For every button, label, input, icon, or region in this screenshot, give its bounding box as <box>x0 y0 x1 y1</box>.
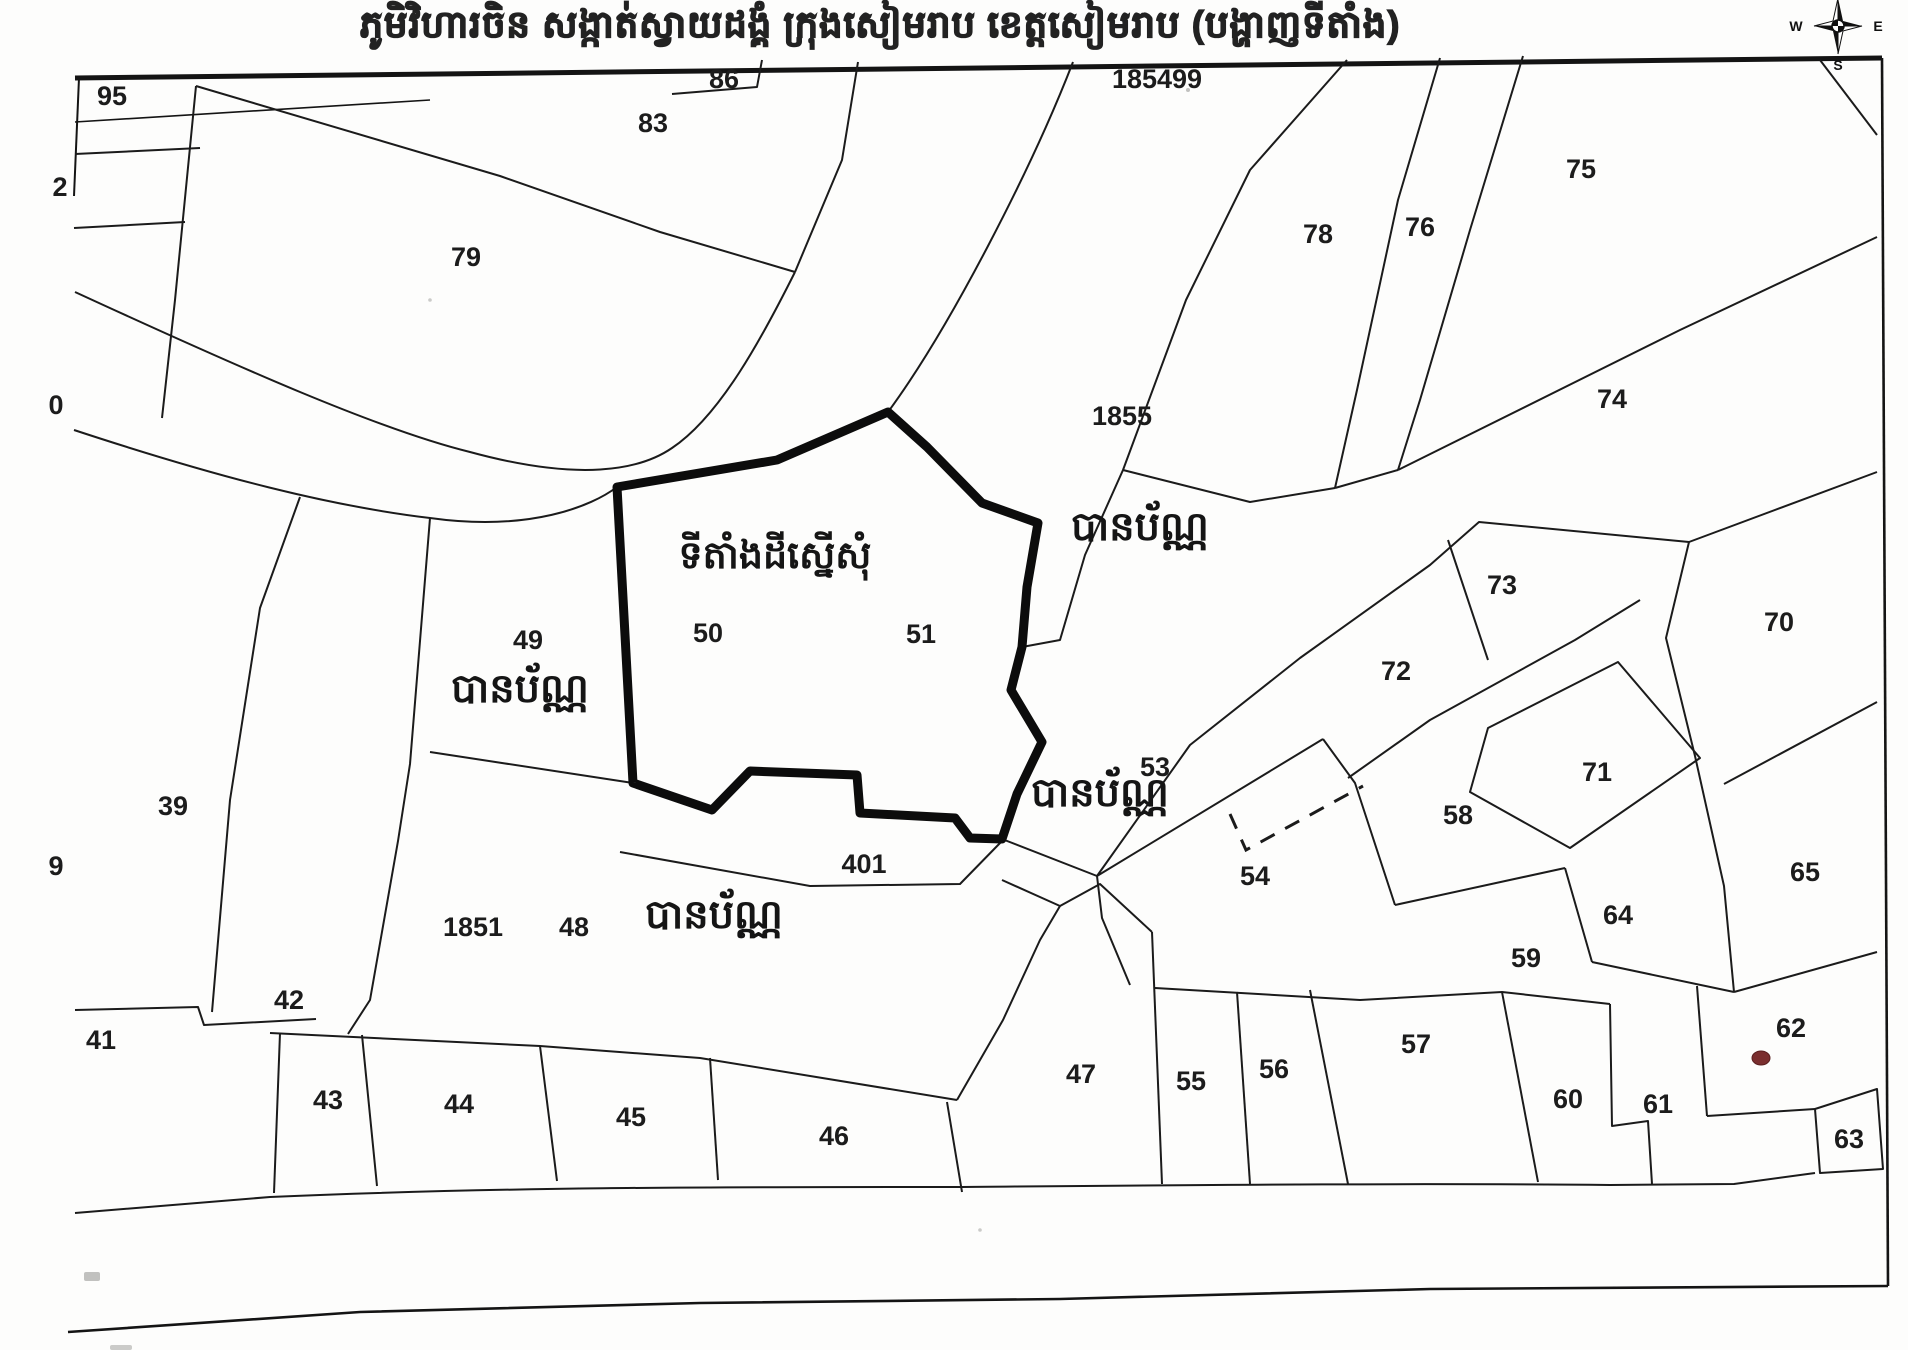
parcel-number: 79 <box>451 242 481 272</box>
parcel-number: 74 <box>1597 384 1627 414</box>
parcel-number: 1851 <box>443 912 503 942</box>
parcel-number: 72 <box>1381 656 1411 686</box>
parcel-number: 58 <box>1443 800 1473 830</box>
compass-east-label: E <box>1873 18 1882 34</box>
compass-south-label: S <box>1833 57 1842 73</box>
area-status-label: បានប័ណ្ណ <box>451 662 589 713</box>
parcel-number: 60 <box>1553 1084 1583 1114</box>
parcel-number: 56 <box>1259 1054 1289 1084</box>
parcel-number: 71 <box>1582 757 1612 787</box>
map-title: ភូមិវិហារចិន សង្កាត់ស្វាយដង្គំ ក្រុងសៀមរ… <box>359 2 1400 56</box>
parcel-number: 63 <box>1834 1124 1864 1154</box>
area-status-label: បានប័ណ្ណ <box>1071 500 1209 551</box>
parcel-number: 2 <box>52 172 67 202</box>
parcel-number: 95 <box>97 81 127 111</box>
map-border <box>68 58 1888 1332</box>
compass-rose: W E S <box>1789 0 1882 73</box>
parcel-boundaries <box>74 56 1883 1213</box>
parcel-number: 51 <box>906 619 936 649</box>
parcel-number: 75 <box>1566 154 1596 184</box>
parcel-number: 9 <box>48 851 63 881</box>
parcel-number: 0 <box>48 390 63 420</box>
parcel-number: 46 <box>819 1121 849 1151</box>
cadastral-map-page: ភូមិវិហារចិន សង្កាត់ស្វាយដង្គំ ក្រុងសៀមរ… <box>0 0 1908 1350</box>
parcel-number: 45 <box>616 1102 646 1132</box>
cadastral-map: W E S 9520983861854997978767574185573707… <box>0 0 1908 1350</box>
parcel-label-layer: 9520983861854997978767574185573707249505… <box>48 64 1864 1154</box>
parcel-number: 1855 <box>1092 401 1152 431</box>
parcel-number: 54 <box>1240 861 1270 891</box>
parcel-number: 70 <box>1764 607 1794 637</box>
area-status-label: បានប័ណ្ណ <box>645 888 783 939</box>
dashed-boundary-line <box>1230 786 1363 850</box>
map-title-bar: ភូមិវិហារចិន សង្កាត់ស្វាយដង្គំ ក្រុងសៀមរ… <box>0 0 1760 58</box>
parcel-number: 50 <box>693 618 723 648</box>
parcel-number: 41 <box>86 1025 116 1055</box>
parcel-number: 57 <box>1401 1029 1431 1059</box>
parcel-number: 55 <box>1176 1066 1206 1096</box>
parcel-number: 61 <box>1643 1089 1673 1119</box>
parcel-number: 42 <box>274 985 304 1015</box>
parcel-number: 49 <box>513 625 543 655</box>
parcel-number: 76 <box>1405 212 1435 242</box>
requested-land-outline <box>617 412 1042 839</box>
parcel-number: 39 <box>158 791 188 821</box>
parcel-number: 73 <box>1487 570 1517 600</box>
red-marker-dot <box>1752 1051 1770 1065</box>
parcel-number: 62 <box>1776 1013 1806 1043</box>
parcel-number: 86 <box>709 64 739 94</box>
parcel-number: 65 <box>1790 857 1820 887</box>
parcel-number: 59 <box>1511 943 1541 973</box>
parcel-number: 185499 <box>1112 64 1202 94</box>
requested-site-label: ទីតាំងដីស្នើសុំ <box>679 531 872 581</box>
parcel-number: 83 <box>638 108 668 138</box>
parcel-number: 47 <box>1066 1059 1096 1089</box>
area-status-label: បានប័ណ្ណ <box>1031 766 1169 817</box>
parcel-number: 44 <box>444 1089 474 1119</box>
parcel-number: 48 <box>559 912 589 942</box>
parcel-number: 43 <box>313 1085 343 1115</box>
compass-west-label: W <box>1789 18 1803 34</box>
parcel-number: 401 <box>841 849 886 879</box>
parcel-number: 78 <box>1303 219 1333 249</box>
parcel-number: 64 <box>1603 900 1633 930</box>
